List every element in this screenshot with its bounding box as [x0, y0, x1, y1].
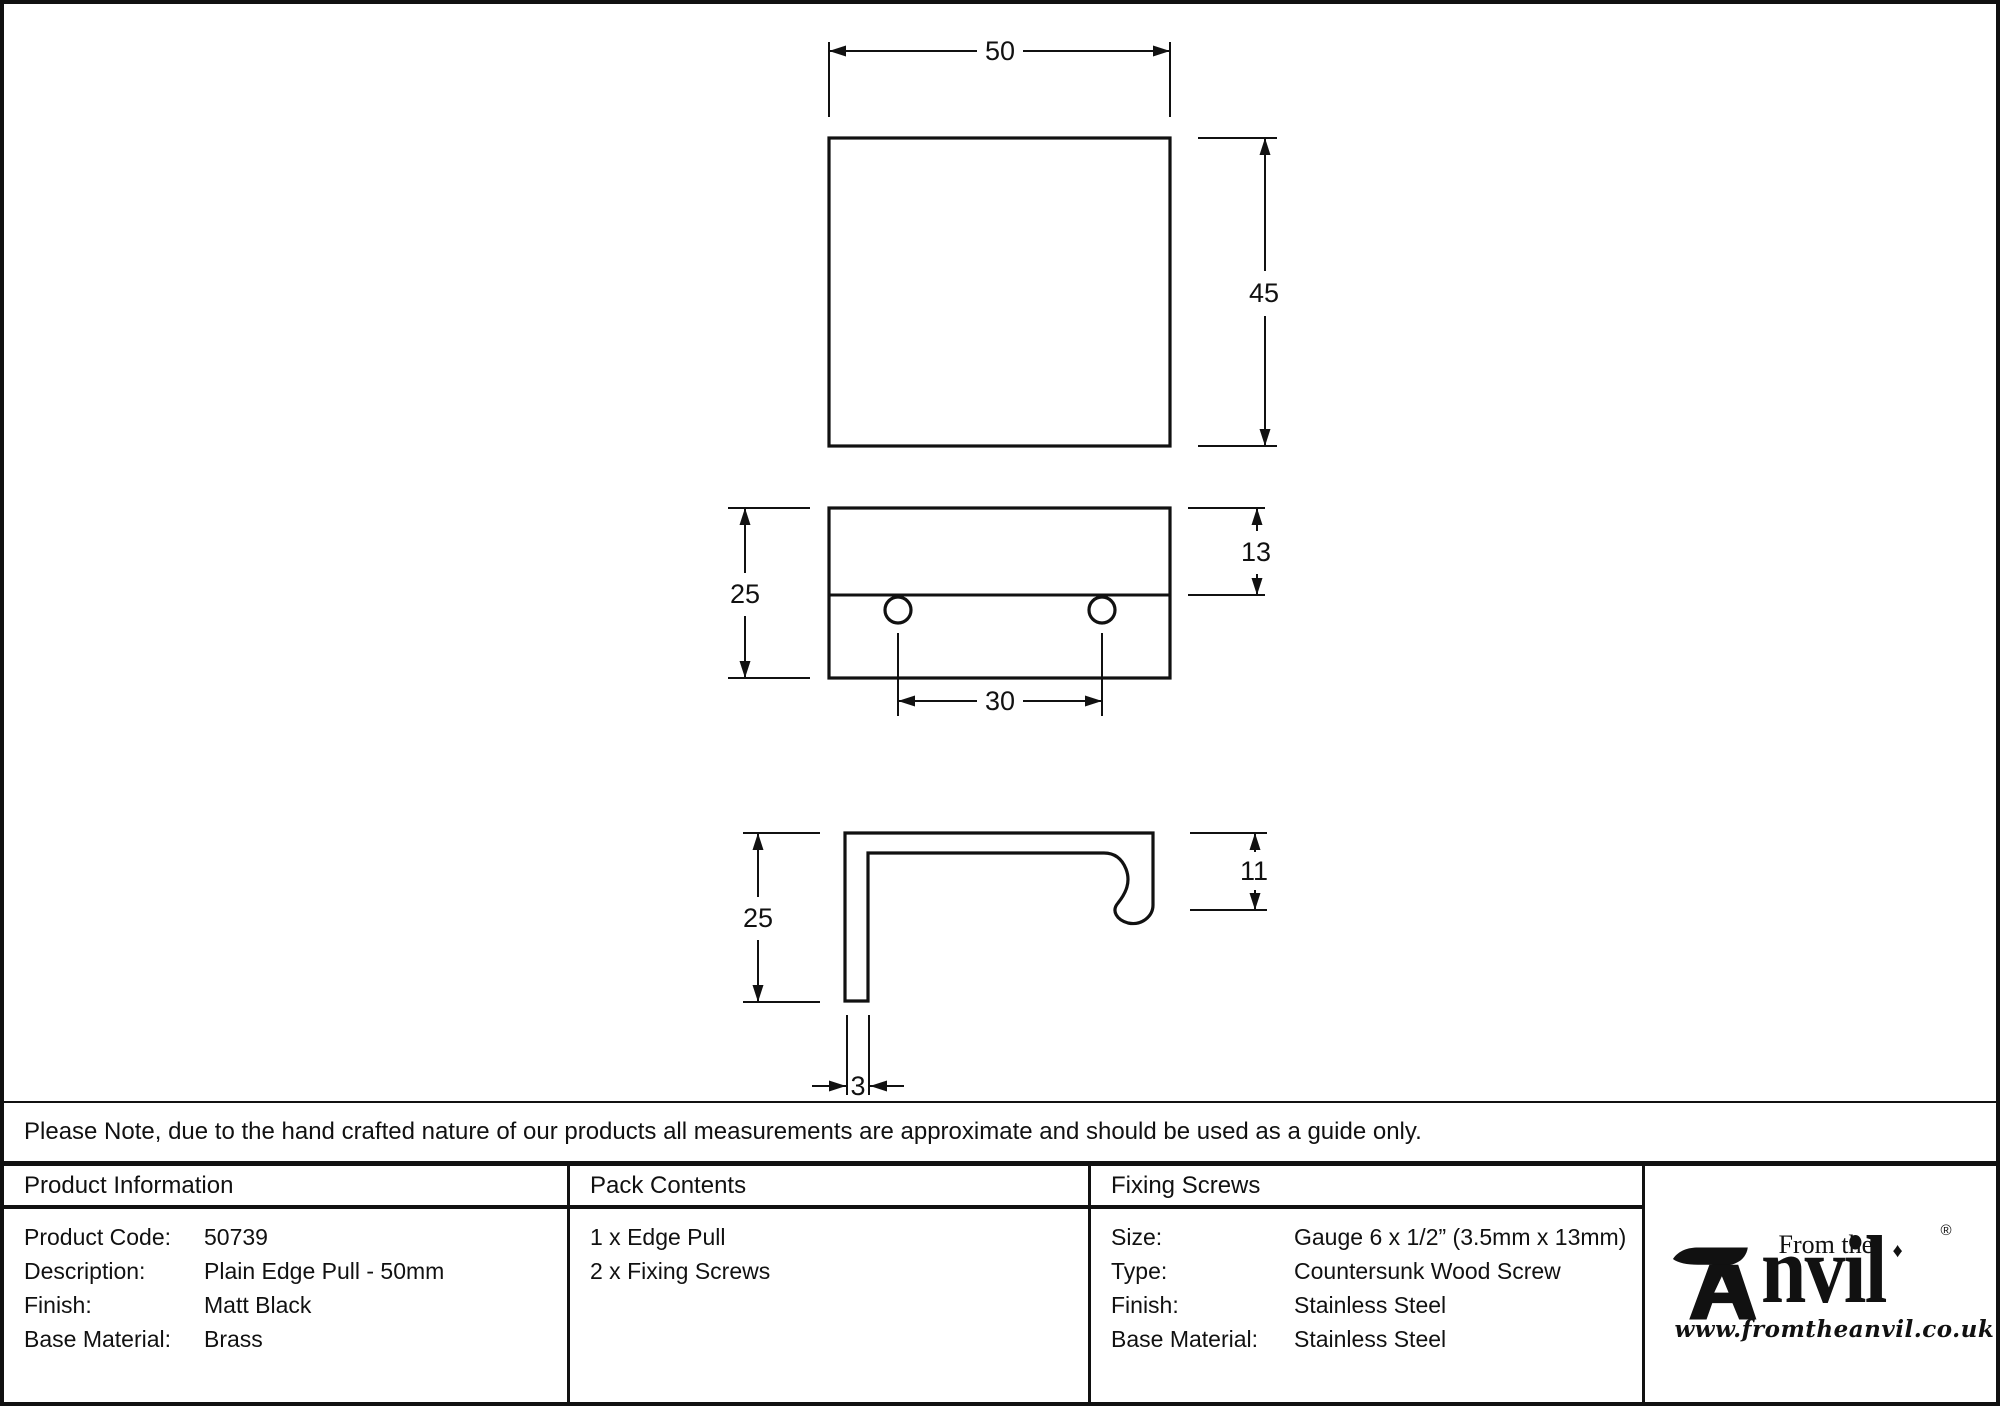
list-item: 1 x Edge Pull	[590, 1220, 1088, 1254]
note-bar: Please Note, due to the hand crafted nat…	[4, 1101, 1996, 1161]
logo-wordmark: nvil	[1761, 1222, 1886, 1318]
diamond-icon: ♦	[1893, 1240, 1903, 1263]
table-row: Finish: Stainless Steel	[1111, 1288, 1642, 1322]
technical-drawing: 50 45 25 13	[4, 4, 1996, 1101]
product-spec-sheet: 50 45 25 13	[0, 0, 2000, 1406]
profile-outline	[845, 833, 1153, 1001]
table-row: Finish: Matt Black	[24, 1288, 567, 1322]
screw-hole-right	[1089, 597, 1115, 623]
side-view: 25 11 3	[743, 833, 1268, 1101]
product-information-cell: Product Code: 50739 Description: Plain E…	[4, 1209, 570, 1402]
row-value: Stainless Steel	[1294, 1326, 1446, 1353]
row-value: Countersunk Wood Screw	[1294, 1258, 1561, 1285]
logo-url: www.fromtheanvil.co.uk	[1675, 1316, 1995, 1343]
table-row: Type: Countersunk Wood Screw	[1111, 1254, 1642, 1288]
row-value: Stainless Steel	[1294, 1292, 1446, 1319]
row-label: Size:	[1111, 1224, 1294, 1251]
row-label: Base Material:	[24, 1326, 204, 1353]
row-label: Type:	[1111, 1258, 1294, 1285]
table-row: Description: Plain Edge Pull - 50mm	[24, 1254, 567, 1288]
dim-hole-spacing: 30	[985, 686, 1015, 716]
list-item: 2 x Fixing Screws	[590, 1254, 1088, 1288]
from-the-anvil-logo: From the ♦ nvil ® www.fromtheanvil.co.uk	[1671, 1222, 1971, 1347]
row-label: Description:	[24, 1258, 204, 1285]
header-product-information: Product Information	[4, 1166, 570, 1209]
note-text: Please Note, due to the hand crafted nat…	[24, 1118, 1422, 1146]
row-label: Finish:	[1111, 1292, 1294, 1319]
top-view: 50 45	[829, 36, 1279, 446]
fixing-screws-cell: Size: Gauge 6 x 1/2” (3.5mm x 13mm) Type…	[1091, 1209, 1645, 1402]
front-outline	[829, 508, 1170, 678]
dim-front-top-section: 13	[1241, 537, 1271, 567]
dim-front-height: 25	[730, 579, 760, 609]
header-pack-contents: Pack Contents	[570, 1166, 1091, 1209]
row-label: Finish:	[24, 1292, 204, 1319]
dim-lip-height: 11	[1240, 856, 1268, 886]
row-label: Base Material:	[1111, 1326, 1294, 1353]
dim-top-width: 50	[985, 36, 1015, 66]
dim-side-height: 25	[743, 903, 773, 933]
brand-logo-cell: From the ♦ nvil ® www.fromtheanvil.co.uk	[1645, 1166, 1996, 1402]
table-row: Product Code: 50739	[24, 1220, 567, 1254]
info-table: Product Information Pack Contents Fixing…	[4, 1161, 1996, 1402]
dim-top-height: 45	[1249, 278, 1279, 308]
row-value: Gauge 6 x 1/2” (3.5mm x 13mm)	[1294, 1224, 1626, 1251]
screw-hole-left	[885, 597, 911, 623]
table-row: Base Material: Brass	[24, 1322, 567, 1356]
pack-contents-cell: 1 x Edge Pull 2 x Fixing Screws	[570, 1209, 1091, 1402]
row-label: Product Code:	[24, 1224, 204, 1251]
header-fixing-screws: Fixing Screws	[1091, 1166, 1645, 1209]
row-value: Matt Black	[204, 1292, 311, 1319]
table-row: Base Material: Stainless Steel	[1111, 1322, 1642, 1356]
table-row: Size: Gauge 6 x 1/2” (3.5mm x 13mm)	[1111, 1220, 1642, 1254]
dim-thickness: 3	[850, 1071, 865, 1101]
plan-outline	[829, 138, 1170, 446]
row-value: Plain Edge Pull - 50mm	[204, 1258, 444, 1285]
registered-trademark-icon: ®	[1941, 1222, 1952, 1239]
anvil-icon	[1671, 1240, 1767, 1326]
row-value: 50739	[204, 1224, 268, 1251]
front-view: 25 13 30	[728, 508, 1271, 716]
row-value: Brass	[204, 1326, 263, 1353]
